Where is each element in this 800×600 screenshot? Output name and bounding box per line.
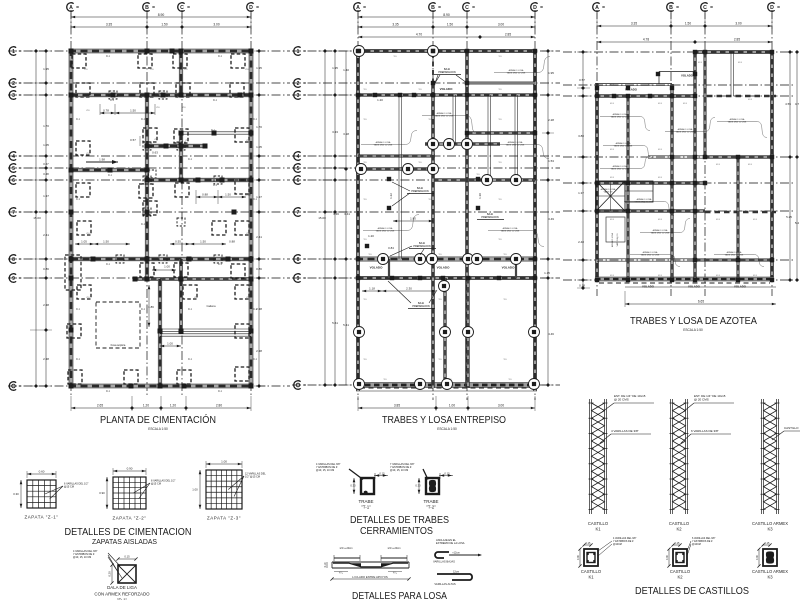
- svg-text:1/2" @15 CM: 1/2" @15 CM: [245, 476, 260, 479]
- svg-text:3: 3: [297, 93, 300, 99]
- svg-text:1.00: 1.00: [167, 342, 173, 346]
- svg-text:1.80: 1.80: [410, 217, 416, 221]
- svg-text:3.49: 3.49: [548, 217, 554, 221]
- svg-text:VARS 3/8@ 10 CMS: VARS 3/8@ 10 CMS: [507, 72, 526, 75]
- svg-text:A: A: [356, 5, 360, 11]
- svg-text:K3: K3: [767, 575, 773, 580]
- svg-text:VOLADO: VOLADO: [642, 285, 655, 289]
- svg-text:2: 2: [297, 81, 300, 87]
- svg-text:12cm: 12cm: [453, 570, 459, 573]
- svg-text:1.70: 1.70: [43, 124, 49, 128]
- svg-text:B: B: [431, 5, 435, 11]
- svg-text:3.35: 3.35: [106, 23, 112, 27]
- svg-text:1.95: 1.95: [332, 66, 338, 70]
- svg-text:PREPARACION: PREPARACION: [411, 190, 428, 193]
- svg-text:0.18: 0.18: [579, 284, 585, 288]
- svg-text:3.46: 3.46: [333, 212, 339, 216]
- svg-text:6.65: 6.65: [698, 300, 704, 304]
- svg-text:0.15: 0.15: [586, 542, 591, 545]
- svg-text:PREPARACION: PREPARACION: [412, 305, 429, 308]
- svg-text:0.30: 0.30: [350, 484, 356, 488]
- svg-text:0.90: 0.90: [127, 467, 133, 471]
- svg-text:ZAPATAS AISLADAS: ZAPATAS AISLADAS: [92, 537, 157, 546]
- svg-text:5.25: 5.25: [786, 215, 792, 219]
- svg-text:0.90: 0.90: [99, 491, 105, 495]
- svg-text:@10CM: @10CM: [613, 543, 622, 546]
- svg-text:C: C: [703, 5, 707, 11]
- svg-text:PREPARACION: PREPARACION: [481, 216, 498, 219]
- svg-text:VOLADO: VOLADO: [437, 266, 451, 270]
- svg-text:4 VARILLAS DE 3/8": 4 VARILLAS DE 3/8": [611, 429, 639, 433]
- svg-text:1.50: 1.50: [685, 22, 691, 26]
- svg-text:0.20: 0.20: [108, 571, 112, 577]
- svg-text:1/4 L+20cm: 1/4 L+20cm: [339, 547, 352, 550]
- svg-text:@15 CM: @15 CM: [151, 483, 161, 486]
- svg-text:2.80: 2.80: [216, 403, 222, 407]
- svg-text:2.65: 2.65: [97, 403, 103, 407]
- svg-text:5.4: 5.4: [795, 221, 800, 225]
- svg-text:@ 20 CMS: @ 20 CMS: [614, 398, 629, 402]
- svg-text:"T-2": "T-2": [426, 505, 436, 510]
- svg-text:DETALLES PARA LOSA: DETALLES PARA LOSA: [352, 591, 447, 600]
- svg-text:1.22: 1.22: [389, 193, 393, 199]
- svg-text:0.84: 0.84: [388, 246, 394, 250]
- svg-text:5.61: 5.61: [332, 321, 338, 325]
- svg-text:2.48: 2.48: [578, 240, 584, 244]
- svg-text:4: 4: [297, 154, 300, 160]
- svg-text:3.35: 3.35: [392, 23, 398, 27]
- svg-text:CASTILLO: CASTILLO: [670, 569, 691, 574]
- svg-text:Cadena: Cadena: [206, 304, 216, 308]
- svg-text:4.70: 4.70: [416, 33, 422, 37]
- svg-text:K1: K1: [595, 527, 601, 532]
- svg-text:0.15: 0.15: [379, 471, 385, 475]
- svg-text:D: D: [249, 5, 253, 11]
- svg-text:15.00: 15.00: [33, 216, 41, 220]
- svg-text:1.50: 1.50: [130, 109, 136, 113]
- svg-text:1.50: 1.50: [225, 193, 231, 197]
- svg-text:4.46: 4.46: [548, 332, 554, 336]
- svg-text:3.35: 3.35: [631, 22, 637, 26]
- svg-text:0.88: 0.88: [245, 193, 251, 197]
- svg-text:4.55: 4.55: [785, 102, 791, 106]
- svg-text:1.50: 1.50: [447, 23, 453, 27]
- svg-text:C: C: [180, 5, 184, 11]
- svg-text:7: 7: [12, 210, 15, 216]
- svg-text:0.27: 0.27: [43, 162, 49, 166]
- svg-text:8.90: 8.90: [443, 13, 450, 17]
- svg-text:PLANTA DE CIMENTACIÓN: PLANTA DE CIMENTACIÓN: [100, 413, 216, 426]
- svg-text:VARS 3/8@ 10 CMS: VARS 3/8@ 10 CMS: [676, 131, 695, 134]
- svg-text:TRABES Y LOSA ENTREPISO: TRABES Y LOSA ENTREPISO: [382, 415, 506, 426]
- svg-text:5.41: 5.41: [343, 323, 349, 327]
- svg-text:1.20: 1.20: [143, 403, 149, 407]
- svg-text:7: 7: [297, 210, 300, 216]
- svg-text:DETALLES DE CASTILLOS: DETALLES DE CASTILLOS: [635, 586, 749, 597]
- svg-text:3.00: 3.00: [213, 23, 219, 27]
- svg-text:CASTILLO: CASTILLO: [784, 426, 799, 430]
- svg-text:0.88: 0.88: [202, 193, 208, 197]
- svg-text:K1: K1: [588, 575, 594, 580]
- svg-text:TRABE: TRABE: [423, 499, 438, 504]
- svg-text:1.37: 1.37: [256, 195, 262, 199]
- svg-text:ESCALA 1:50: ESCALA 1:50: [148, 427, 168, 431]
- svg-text:CASTILLO: CASTILLO: [581, 569, 602, 574]
- svg-text:0.15: 0.15: [124, 555, 130, 559]
- svg-text:VOLADO: VOLADO: [734, 285, 747, 289]
- svg-text:ZAPATA "Z-1": ZAPATA "Z-1": [25, 515, 59, 520]
- svg-text:1.70: 1.70: [256, 125, 262, 129]
- svg-text:1.98: 1.98: [99, 158, 105, 162]
- svg-text:ESCALA 1:50: ESCALA 1:50: [437, 427, 457, 431]
- svg-text:0.30: 0.30: [577, 554, 580, 559]
- svg-text:0.78: 0.78: [103, 109, 109, 113]
- svg-text:VARILLAS ALTAS: VARILLAS ALTAS: [434, 582, 456, 586]
- svg-text:VARS 3/8@ 10 CMS: VARS 3/8@ 10 CMS: [651, 232, 670, 235]
- svg-text:1.95: 1.95: [548, 71, 554, 75]
- svg-text:0.57: 0.57: [130, 138, 136, 142]
- svg-text:1.20: 1.20: [170, 403, 176, 407]
- svg-text:0.63: 0.63: [152, 151, 158, 155]
- svg-text:1.50: 1.50: [161, 23, 167, 27]
- svg-text:3.00: 3.00: [498, 403, 504, 407]
- svg-text:VARS 3/8@ 10 CMS: VARS 3/8@ 10 CMS: [635, 201, 654, 204]
- svg-text:3.85: 3.85: [394, 403, 400, 407]
- svg-text:1.50: 1.50: [103, 240, 109, 244]
- svg-text:@ 20 CMS: @ 20 CMS: [694, 398, 709, 402]
- svg-text:TRABES Y LOSA DE AZOTEA: TRABES Y LOSA DE AZOTEA: [630, 316, 757, 327]
- svg-text:0.30: 0.30: [756, 554, 759, 559]
- svg-text:VARS 3/8@ 10 CMS: VARS 3/8@ 10 CMS: [506, 144, 525, 147]
- svg-text:1.00: 1.00: [449, 403, 455, 407]
- svg-text:3.33: 3.33: [332, 130, 338, 134]
- svg-text:VARS 3/8@ 10 CMS: VARS 3/8@ 10 CMS: [376, 230, 395, 233]
- svg-text:VOLADO: VOLADO: [370, 266, 384, 270]
- svg-text:5: 5: [12, 166, 15, 172]
- svg-text:0.86: 0.86: [256, 267, 262, 271]
- svg-text:D: D: [533, 5, 537, 11]
- svg-text:0.15: 0.15: [675, 542, 680, 545]
- svg-text:6: 6: [297, 178, 300, 184]
- svg-text:0.60: 0.60: [39, 470, 45, 474]
- svg-text:1.00: 1.00: [164, 265, 170, 269]
- svg-text:15.00: 15.00: [318, 216, 326, 220]
- svg-text:DALA DE LIGA: DALA DE LIGA: [107, 585, 137, 590]
- svg-text:1: 1: [297, 49, 300, 55]
- svg-text:2.30: 2.30: [406, 287, 412, 291]
- svg-text:0.88: 0.88: [229, 240, 235, 244]
- svg-text:CON ARMEX REFORZADO: CON ARMEX REFORZADO: [94, 592, 150, 597]
- svg-text:VARS 3/8@ 10 CMS: VARS 3/8@ 10 CMS: [641, 254, 660, 257]
- svg-text:VOLADO: VOLADO: [688, 285, 701, 289]
- svg-text:0.86: 0.86: [43, 267, 49, 271]
- svg-text:2: 2: [12, 81, 15, 87]
- svg-text:2.41: 2.41: [43, 233, 49, 237]
- svg-text:2.38: 2.38: [43, 303, 49, 307]
- svg-text:DETALLES DE TRABES: DETALLES DE TRABES: [350, 515, 449, 526]
- svg-text:1.40: 1.40: [343, 68, 349, 72]
- svg-text:1.95: 1.95: [43, 67, 49, 71]
- svg-text:2.85: 2.85: [734, 38, 740, 42]
- svg-text:3.00: 3.00: [498, 23, 504, 27]
- svg-text:1: 1: [12, 49, 15, 55]
- svg-text:0.15: 0.15: [765, 542, 770, 545]
- svg-text:1.20: 1.20: [368, 234, 374, 238]
- svg-text:@15 CM: @15 CM: [64, 486, 74, 489]
- svg-text:1.05: 1.05: [256, 145, 262, 149]
- svg-text:1.05: 1.05: [81, 240, 87, 244]
- svg-text:TRABE: TRABE: [358, 499, 373, 504]
- svg-text:2.41: 2.41: [256, 235, 262, 239]
- svg-text:3: 3: [12, 93, 15, 99]
- svg-text:VARS 3/8@ 10: VARS 3/8@ 10: [616, 234, 619, 247]
- svg-text:VARS 3/8: VARS 3/8: [604, 191, 614, 194]
- svg-text:B: B: [145, 5, 149, 11]
- svg-text:VARS 3/8@ 10 CMS: VARS 3/8@ 10 CMS: [374, 144, 393, 147]
- svg-text:1.53: 1.53: [548, 159, 554, 163]
- svg-text:VARS 3/8@ 10 CMS: VARS 3/8@ 10 CMS: [501, 230, 520, 233]
- svg-text:2.38: 2.38: [43, 357, 49, 361]
- svg-text:K2: K2: [676, 527, 682, 532]
- svg-text:ESCALA 1:50: ESCALA 1:50: [683, 328, 703, 332]
- svg-text:4: 4: [12, 154, 15, 160]
- svg-text:VARS 3/8@ 10 CMS: VARS 3/8@ 10 CMS: [611, 116, 630, 119]
- svg-text:VARS 3/8@ 10 CMS: VARS 3/8@ 10 CMS: [611, 168, 630, 171]
- svg-text:2.28: 2.28: [548, 118, 554, 122]
- svg-text:0.55: 0.55: [175, 240, 181, 244]
- svg-text:VOLADO: VOLADO: [625, 88, 638, 92]
- svg-text:0.30: 0.30: [666, 554, 669, 559]
- svg-text:"T-1": "T-1": [361, 505, 371, 510]
- svg-text:8: 8: [12, 257, 15, 263]
- svg-text:VOLADO: VOLADO: [440, 87, 454, 91]
- svg-text:0.15: 0.15: [444, 471, 450, 475]
- svg-text:9: 9: [12, 276, 15, 282]
- svg-text:+12cm: +12cm: [452, 551, 460, 554]
- svg-text:D: D: [770, 5, 774, 11]
- svg-text:CASTILLO ARMEX: CASTILLO ARMEX: [752, 569, 788, 574]
- svg-text:VARS 3/8@ 10 CMS: VARS 3/8@ 10 CMS: [728, 121, 747, 124]
- svg-text:VOLADO: VOLADO: [681, 74, 694, 78]
- svg-text:@10, 15, 10 CM: @10, 15, 10 CM: [316, 469, 334, 472]
- svg-text:@10CM: @10CM: [692, 543, 701, 546]
- svg-text:ARMADO LOSA: ARMADO LOSA: [611, 232, 614, 247]
- svg-text:9: 9: [297, 276, 300, 282]
- svg-text:K3: K3: [767, 527, 773, 532]
- svg-text:1.15: 1.15: [544, 271, 550, 275]
- svg-text:L=CLARO ENTRE APOYOS: L=CLARO ENTRE APOYOS: [352, 575, 388, 579]
- svg-text:6: 6: [12, 178, 15, 184]
- svg-text:1.05: 1.05: [43, 143, 49, 147]
- svg-text:4.7: 4.7: [795, 102, 800, 106]
- svg-text:4.78: 4.78: [643, 38, 649, 42]
- svg-text:@10, 15, 10 CM: @10, 15, 10 CM: [390, 469, 408, 472]
- svg-text:ZAPATA "Z-2": ZAPATA "Z-2": [113, 516, 147, 521]
- svg-text:PREPARACION: PREPARACION: [438, 71, 455, 74]
- svg-text:K2: K2: [677, 575, 683, 580]
- svg-text:Fosa séptica: Fosa séptica: [111, 343, 126, 347]
- svg-text:3.00: 3.00: [735, 22, 741, 26]
- svg-text:¼ L: ¼ L: [393, 572, 398, 575]
- svg-text:1.37: 1.37: [578, 191, 584, 195]
- svg-text:@10, 15, 10 CM: @10, 15, 10 CM: [73, 556, 91, 559]
- svg-text:1.95: 1.95: [256, 66, 262, 70]
- svg-text:2.38: 2.38: [256, 349, 262, 353]
- svg-text:1.86: 1.86: [148, 305, 154, 309]
- svg-text:CERRAMIENTOS: CERRAMIENTOS: [360, 526, 433, 537]
- svg-text:1.37: 1.37: [43, 194, 49, 198]
- svg-text:VARS 3/8@ 10 CMS: VARS 3/8@ 10 CMS: [725, 254, 744, 257]
- svg-text:0.30: 0.30: [13, 492, 19, 496]
- svg-text:3.80: 3.80: [578, 134, 584, 138]
- svg-text:ZAPATA "Z-3": ZAPATA "Z-3": [207, 516, 241, 521]
- svg-text:0.30: 0.30: [415, 484, 421, 488]
- svg-text:0.10: 0.10: [324, 562, 327, 567]
- svg-text:8: 8: [297, 257, 300, 263]
- svg-text:2.85: 2.85: [505, 33, 511, 37]
- svg-text:PREPARACION: PREPARACION: [413, 245, 430, 248]
- svg-text:CASTILLO ARMEX: CASTILLO ARMEX: [752, 521, 788, 526]
- svg-text:2.38: 2.38: [256, 307, 262, 311]
- svg-text:1.00: 1.00: [221, 460, 227, 464]
- svg-text:1.50: 1.50: [200, 240, 206, 244]
- svg-text:EXTREMO DE LA LOSA: EXTREMO DE LA LOSA: [436, 541, 465, 545]
- svg-text:3.41: 3.41: [344, 212, 350, 216]
- svg-text:VARS 3/8@ 10 CMS: VARS 3/8@ 10 CMS: [614, 145, 633, 148]
- svg-text:6 VARILLAS DE 3/8": 6 VARILLAS DE 3/8": [691, 429, 719, 433]
- svg-text:VARILLAS BAJAS: VARILLAS BAJAS: [433, 560, 455, 564]
- svg-text:1.00: 1.00: [192, 488, 198, 492]
- svg-text:5: 5: [297, 166, 300, 172]
- svg-text:A: A: [69, 5, 73, 11]
- svg-text:CASTILLO: CASTILLO: [669, 521, 690, 526]
- svg-text:1.30: 1.30: [478, 193, 482, 199]
- svg-text:CASTILLO: CASTILLO: [588, 521, 609, 526]
- svg-text:1.18: 1.18: [369, 287, 375, 291]
- svg-text:1.20: 1.20: [377, 98, 383, 102]
- svg-text:8.90: 8.90: [158, 13, 165, 17]
- svg-text:0.57: 0.57: [579, 78, 585, 82]
- svg-text:¼ L: ¼ L: [339, 572, 344, 575]
- svg-text:VARS 3/8@ 10 CMS: VARS 3/8@ 10 CMS: [435, 115, 454, 118]
- svg-text:1/4 L+20cm: 1/4 L+20cm: [387, 547, 400, 550]
- svg-text:3.18: 3.18: [343, 132, 349, 136]
- svg-text:C: C: [465, 5, 469, 11]
- svg-text:A: A: [595, 5, 599, 11]
- svg-text:0.48: 0.48: [43, 172, 49, 176]
- svg-text:B: B: [669, 5, 673, 11]
- svg-text:VOLADO: VOLADO: [502, 266, 516, 270]
